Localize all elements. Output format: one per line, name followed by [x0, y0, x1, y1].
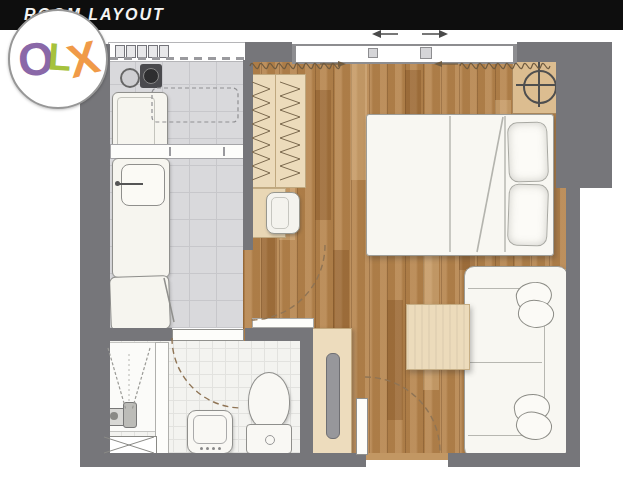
- basin-dot: [200, 447, 203, 450]
- slide-arrow-left-head: [372, 30, 381, 38]
- shelf-tick: [223, 147, 225, 156]
- stove-grill-icon: [140, 64, 162, 88]
- wall-block-top-right: [556, 42, 612, 188]
- washbasin: [187, 410, 233, 454]
- wall-bottom-right: [448, 453, 580, 467]
- shower-head-icon: [123, 402, 137, 428]
- sofa-cushion-group: [512, 394, 556, 446]
- cabinet-handle-slot: [326, 353, 340, 439]
- entrance-door-leaf: [356, 398, 368, 455]
- wall-left: [80, 44, 110, 467]
- pillow: [507, 183, 549, 246]
- coffee-table: [406, 304, 470, 370]
- window-post: [513, 46, 517, 62]
- shoe-cabinet: [312, 328, 352, 460]
- wardrobe: [248, 74, 306, 188]
- room-layout-screenshot: ROOM LAYOUT O L X: [0, 0, 623, 477]
- lamp-cross-v: [538, 62, 540, 107]
- basin-dot: [206, 447, 209, 450]
- counter-edge-dashes: [110, 57, 245, 60]
- wood-plank: [315, 90, 331, 220]
- wood-plank: [351, 60, 367, 180]
- gas-burner-icon: [120, 68, 140, 88]
- faucet-spout: [119, 183, 143, 185]
- stove-grill-ring: [143, 68, 159, 84]
- basin-bowl: [193, 415, 227, 444]
- wood-plank: [387, 300, 403, 420]
- basin-dot: [212, 447, 215, 450]
- sliding-window: [292, 44, 517, 64]
- table-lamp-icon: [523, 70, 557, 104]
- wall-bathroom-right: [300, 328, 313, 467]
- basin-dot: [218, 447, 221, 450]
- refrigerator: [109, 275, 171, 331]
- washer-lid: [117, 97, 155, 149]
- entrance-threshold: [366, 453, 448, 460]
- window-latch: [420, 47, 432, 59]
- threshold-bar: [252, 318, 314, 328]
- window-post: [292, 46, 296, 62]
- sofa-cushion-group: [514, 282, 558, 334]
- chair-seat: [271, 197, 289, 229]
- wall-bathroom-top-left: [108, 328, 172, 341]
- wall-kitchen-divider: [243, 60, 253, 250]
- wall-top-mid: [245, 42, 292, 62]
- kitchen-counter: [112, 158, 170, 278]
- pillow: [507, 121, 549, 182]
- slide-arrow-right-head: [439, 30, 448, 38]
- window-latch: [368, 48, 378, 58]
- wall-bottom-left: [80, 453, 366, 467]
- wardrobe-divider: [275, 75, 276, 187]
- olx-logo: O L X: [8, 9, 108, 109]
- drain-hole: [110, 412, 118, 420]
- flush-button: [265, 435, 275, 445]
- bathroom-door-leaf: [172, 329, 244, 341]
- chair: [266, 192, 300, 234]
- toilet-bowl: [248, 372, 290, 430]
- shelf-tick: [169, 147, 171, 156]
- counter-shelf: [110, 144, 247, 159]
- toilet-tank: [246, 424, 292, 454]
- wall-right: [566, 188, 580, 467]
- kitchen-sink: [121, 164, 165, 206]
- shower-partition: [155, 342, 169, 454]
- sofa-seat-split-line: [468, 362, 542, 363]
